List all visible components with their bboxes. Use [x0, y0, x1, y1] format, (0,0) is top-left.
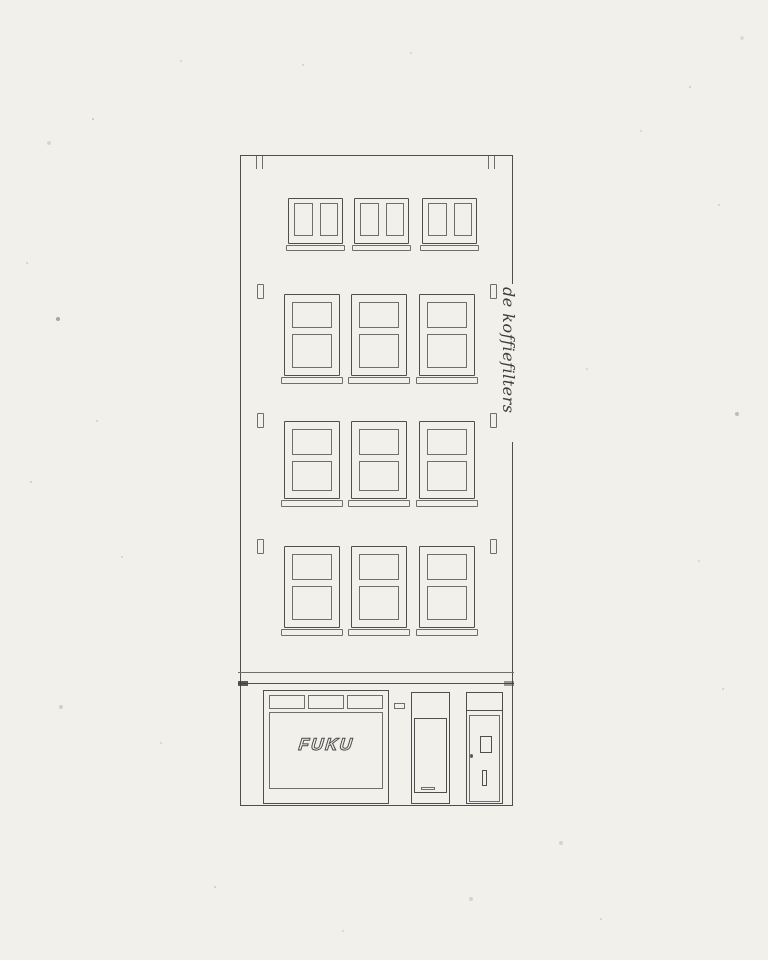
wall-anchor — [257, 284, 264, 299]
sash-window — [351, 294, 407, 376]
window-pane-bottom — [427, 586, 467, 620]
roof-tick-left — [256, 156, 263, 169]
shop-sign-text: FUKU — [298, 735, 355, 755]
sash-window — [284, 421, 340, 499]
window-sill — [352, 245, 411, 251]
window-sill — [416, 629, 478, 636]
wall-anchor — [490, 539, 497, 554]
window-pane-top — [292, 429, 332, 455]
window-pane-top — [427, 429, 467, 455]
window-pane — [428, 203, 447, 236]
roof-tick-right — [488, 156, 495, 169]
entrance-door-middle — [411, 692, 450, 804]
window-pane-top — [427, 554, 467, 580]
mail-slot — [482, 770, 487, 786]
paper-texture — [0, 0, 2, 2]
side-script-text: de koffiefilters — [499, 287, 518, 413]
window-pane-top — [427, 302, 467, 328]
fascia-end-cap — [238, 681, 248, 686]
transom-pane — [269, 695, 305, 709]
sash-window — [419, 294, 475, 376]
window-sill — [281, 629, 343, 636]
paper-background: de koffiefilters FUKU — [0, 0, 768, 960]
attic-window — [288, 198, 343, 244]
window-sill — [281, 377, 343, 384]
window-pane-bottom — [359, 334, 399, 368]
window-pane — [320, 203, 338, 236]
storefront-fascia — [238, 672, 514, 684]
transom-row — [269, 695, 383, 709]
window-pane — [360, 203, 379, 236]
window-pane — [454, 203, 472, 236]
shop-window: FUKU — [263, 690, 389, 804]
keyhole — [470, 754, 473, 758]
transom-pane — [308, 695, 344, 709]
sash-window — [351, 421, 407, 499]
window-pane-bottom — [359, 586, 399, 620]
transom-pane — [347, 695, 383, 709]
door-sign-plate — [394, 703, 405, 709]
window-pane-bottom — [292, 586, 332, 620]
wall-anchor — [257, 413, 264, 428]
wall-anchor — [257, 539, 264, 554]
window-pane-bottom — [427, 334, 467, 368]
door-transom — [467, 693, 502, 711]
window-sill — [348, 500, 410, 507]
door-window — [480, 736, 492, 753]
window-sill — [420, 245, 479, 251]
sash-window — [284, 546, 340, 628]
window-pane-bottom — [292, 461, 332, 491]
building-outline: de koffiefilters FUKU — [240, 155, 513, 806]
door-leaf — [469, 715, 500, 802]
window-sill — [416, 377, 478, 384]
window-pane-top — [292, 302, 332, 328]
fascia-end-cap — [504, 681, 514, 686]
door-leaf — [414, 718, 447, 793]
window-sill — [416, 500, 478, 507]
wall-anchor — [490, 284, 497, 299]
entrance-door-right — [466, 692, 503, 804]
window-pane-bottom — [359, 461, 399, 491]
window-pane-bottom — [292, 334, 332, 368]
window-sill — [348, 377, 410, 384]
window-pane-top — [359, 554, 399, 580]
sash-window — [419, 421, 475, 499]
attic-window — [354, 198, 409, 244]
window-pane-bottom — [427, 461, 467, 491]
sash-window — [284, 294, 340, 376]
window-pane-top — [359, 302, 399, 328]
window-sill — [348, 629, 410, 636]
attic-window — [422, 198, 477, 244]
window-pane-top — [359, 429, 399, 455]
sash-window — [419, 546, 475, 628]
wall-anchor — [490, 413, 497, 428]
window-sill — [286, 245, 345, 251]
sash-window — [351, 546, 407, 628]
door-handle — [421, 787, 435, 790]
window-pane-top — [292, 554, 332, 580]
window-sill — [281, 500, 343, 507]
window-pane — [386, 203, 404, 236]
shop-window-glass: FUKU — [269, 712, 383, 789]
window-pane — [294, 203, 313, 236]
